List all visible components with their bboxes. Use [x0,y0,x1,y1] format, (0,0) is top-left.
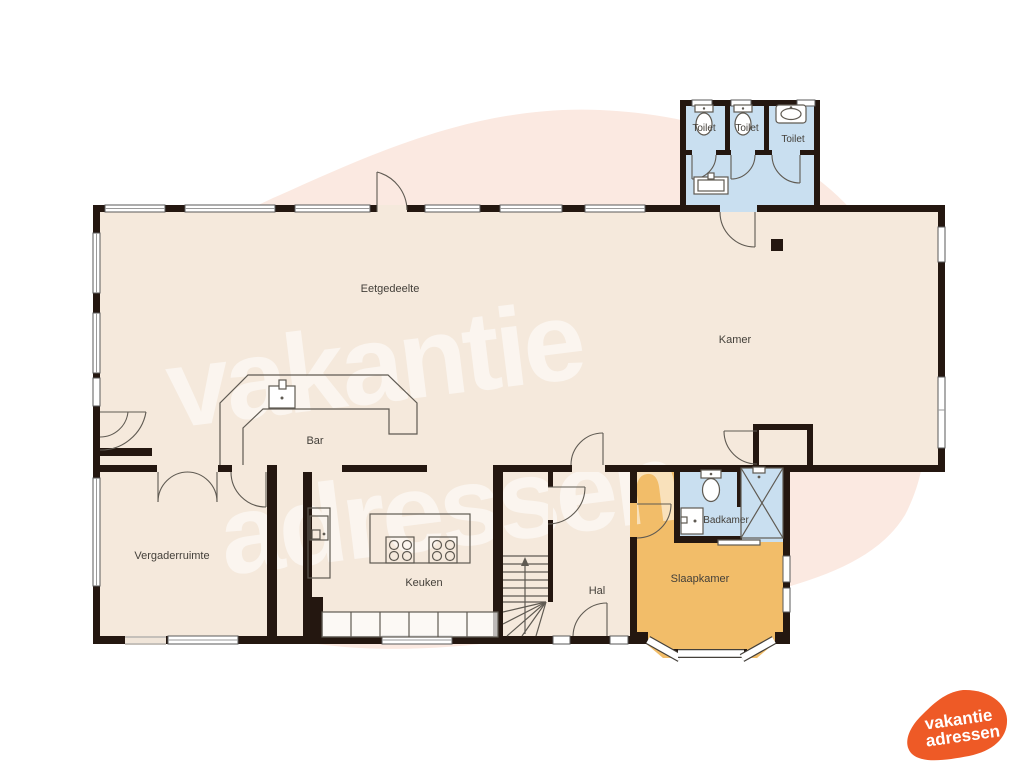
shower-icon [741,467,783,538]
room-label-kamer: Kamer [719,334,752,346]
room-label-keuken: Keuken [405,577,442,589]
room-label-hal: Hal [589,585,606,597]
room-label-slaapkamer: Slaapkamer [671,573,730,585]
room-label-toilet-1: Toilet [692,123,716,134]
brand-logo: vakantie adressen [907,690,1007,760]
room-label-bar: Bar [306,435,323,447]
room-label-badkamer: Badkamer [703,515,749,526]
sink-icon [681,508,703,534]
room-label-toilet-2: Toilet [735,123,759,134]
room-label-vergaderruimte: Vergaderruimte [134,550,209,562]
kitchen-counter [322,612,498,637]
sink-icon [776,105,806,123]
room-label-eetgedeelte: Eetgedeelte [361,283,420,295]
room-label-toilet-3: Toilet [781,134,805,145]
floorplan-canvas: vakantie adressen [0,0,1024,768]
toilet-icon [701,470,721,502]
column [771,239,783,251]
